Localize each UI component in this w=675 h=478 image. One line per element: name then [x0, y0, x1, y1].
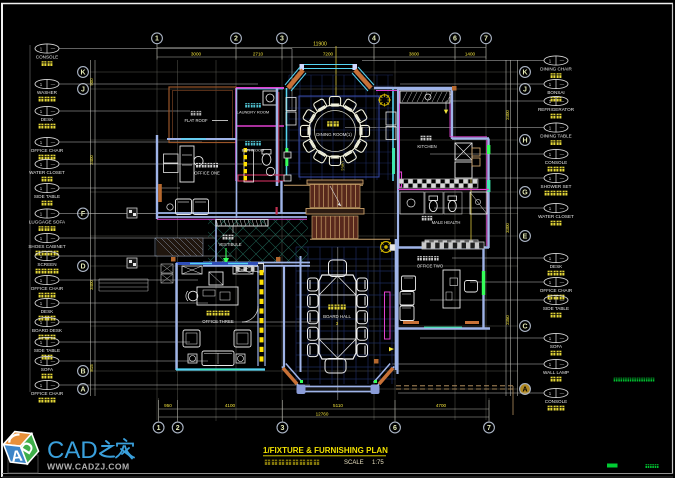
svg-text:3400: 3400 [89, 280, 94, 290]
svg-text:—: — [51, 108, 56, 113]
svg-text:—: — [51, 277, 56, 282]
svg-text:OFFICE CHAIR: OFFICE CHAIR [31, 286, 64, 291]
svg-text:2300: 2300 [505, 110, 510, 120]
svg-text:5110: 5110 [333, 403, 343, 408]
svg-text:—: — [560, 361, 565, 366]
svg-text:OFFICE CHAIR: OFFICE CHAIR [540, 288, 573, 293]
svg-text:CONSOLE: CONSOLE [545, 399, 567, 404]
svg-text:—: — [560, 390, 565, 395]
svg-text:SCALE: SCALE [344, 460, 364, 466]
svg-text:—: — [51, 139, 56, 144]
svg-text:—: — [51, 235, 56, 240]
svg-text:WATER CLOSET: WATER CLOSET [538, 214, 574, 219]
svg-text:—: — [560, 175, 565, 180]
svg-text:4: 4 [372, 36, 376, 43]
svg-text:BOARD DESK: BOARD DESK [32, 328, 63, 333]
svg-text:KITCHEN: KITCHEN [417, 144, 436, 149]
svg-text:3000: 3000 [191, 52, 202, 57]
svg-text:SOFA: SOFA [41, 367, 54, 372]
svg-text:—: — [560, 205, 565, 210]
svg-text:SHOWER SET: SHOWER SET [541, 184, 572, 189]
svg-text:—: — [560, 335, 565, 340]
svg-text:—: — [51, 46, 56, 51]
svg-text:—: — [560, 279, 565, 284]
svg-text:G: G [522, 189, 528, 196]
svg-text:3800: 3800 [409, 52, 420, 57]
svg-text:K: K [522, 69, 527, 76]
svg-text:7: 7 [487, 425, 491, 432]
svg-text:B: B [80, 368, 85, 375]
svg-text:—: — [560, 297, 565, 302]
svg-text:J: J [81, 86, 85, 93]
svg-text:7200: 7200 [323, 52, 334, 57]
svg-text:900: 900 [89, 78, 94, 86]
svg-text:SIDE TABLE: SIDE TABLE [543, 306, 569, 311]
svg-text:REFRIGERATOR: REFRIGERATOR [538, 107, 575, 112]
svg-text:2: 2 [176, 425, 180, 432]
svg-text:WALL LAMP: WALL LAMP [543, 370, 569, 375]
svg-text:SIDE TABLE: SIDE TABLE [34, 194, 60, 199]
svg-text:SIDE TABLE: SIDE TABLE [34, 348, 60, 353]
svg-text:2400: 2400 [89, 155, 94, 165]
svg-text:11900: 11900 [313, 42, 327, 48]
svg-text:DESK: DESK [41, 309, 54, 314]
svg-text:CONSOLE: CONSOLE [36, 55, 58, 60]
svg-text:—: — [51, 339, 56, 344]
svg-text:—: — [51, 300, 56, 305]
svg-text:7: 7 [484, 36, 488, 43]
svg-text:2710: 2710 [253, 52, 264, 57]
svg-text:950: 950 [164, 403, 172, 408]
svg-text:2380: 2380 [341, 161, 346, 171]
svg-text:F: F [81, 211, 86, 218]
svg-text:—: — [560, 81, 565, 86]
svg-text:6: 6 [453, 36, 457, 43]
svg-text:WATER CLOSET: WATER CLOSET [29, 170, 65, 175]
svg-text:LAUNDRY ROOM: LAUNDRY ROOM [237, 110, 270, 115]
svg-text:DINING CHAIR: DINING CHAIR [540, 67, 572, 72]
svg-text:DESK: DESK [41, 117, 54, 122]
svg-text:OFFICE ONE: OFFICE ONE [194, 171, 220, 176]
svg-text:BATHROOM: BATHROOM [242, 148, 265, 153]
svg-text:3300: 3300 [505, 223, 510, 233]
svg-text:1/FIXTURE & FURNISHING PLAN: 1/FIXTURE & FURNISHING PLAN [263, 446, 388, 455]
svg-text:1:75: 1:75 [372, 460, 384, 466]
svg-text:—: — [51, 382, 56, 387]
svg-text:SCREEN: SCREEN [37, 262, 56, 267]
svg-text:DINING ROOM(1): DINING ROOM(1) [316, 132, 352, 137]
svg-text:SOFA: SOFA [550, 344, 563, 349]
svg-text:A: A [522, 386, 527, 393]
svg-text:DINING TABLE: DINING TABLE [540, 134, 571, 139]
svg-text:—: — [51, 185, 56, 190]
svg-text:E: E [523, 233, 528, 240]
svg-text:12760: 12760 [316, 411, 329, 416]
svg-text:—: — [560, 151, 565, 156]
svg-text:SHOES CABINET: SHOES CABINET [28, 244, 65, 249]
svg-text:6: 6 [393, 425, 397, 432]
svg-text:OFFICE THREE: OFFICE THREE [202, 319, 234, 324]
svg-text:—: — [51, 81, 56, 86]
svg-text:1400: 1400 [465, 52, 476, 57]
svg-text:1: 1 [157, 425, 161, 432]
svg-text:CONSOLE: CONSOLE [545, 160, 567, 165]
svg-text:C: C [522, 323, 527, 330]
svg-text:3: 3 [280, 425, 284, 432]
svg-text:4700: 4700 [436, 403, 447, 408]
svg-text:DESK: DESK [550, 264, 563, 269]
svg-text:VESTIBULE: VESTIBULE [218, 242, 241, 247]
svg-text:—: — [51, 253, 56, 258]
svg-text:OFFICE CHAIR: OFFICE CHAIR [31, 391, 64, 396]
svg-text:—: — [560, 125, 565, 130]
svg-text:OFFICE TWO: OFFICE TWO [417, 264, 444, 269]
svg-text:BONSAI: BONSAI [547, 90, 564, 95]
svg-text:—: — [560, 58, 565, 63]
svg-text:WASHER: WASHER [37, 90, 58, 95]
svg-text:A: A [80, 386, 85, 393]
svg-text:815: 815 [89, 364, 94, 372]
svg-text:—: — [51, 358, 56, 363]
svg-text:WWW.CADZJ.COM: WWW.CADZJ.COM [47, 462, 130, 472]
svg-text:FLAT ROOF: FLAT ROOF [184, 118, 208, 123]
svg-text:—: — [51, 161, 56, 166]
svg-text:D: D [80, 263, 85, 270]
svg-text:3: 3 [280, 36, 284, 43]
svg-text:MALE HEALTH: MALE HEALTH [432, 220, 461, 225]
svg-text:OFFICE CHAIR: OFFICE CHAIR [31, 148, 64, 153]
svg-text:H: H [522, 137, 527, 144]
svg-text:J: J [523, 86, 527, 93]
svg-text:LUGGAGE SOFA: LUGGAGE SOFA [29, 220, 66, 225]
svg-text:BOARD HALL: BOARD HALL [323, 314, 351, 319]
svg-text:2350: 2350 [505, 315, 510, 325]
svg-text:1: 1 [155, 36, 159, 43]
svg-text:—: — [51, 319, 56, 324]
svg-text:CAD: CAD [47, 437, 98, 464]
svg-text:—: — [560, 98, 565, 103]
svg-text:—: — [560, 255, 565, 260]
svg-text:2: 2 [234, 36, 238, 43]
svg-text:K: K [80, 69, 85, 76]
svg-text:—: — [51, 211, 56, 216]
svg-text:4100: 4100 [225, 403, 236, 408]
